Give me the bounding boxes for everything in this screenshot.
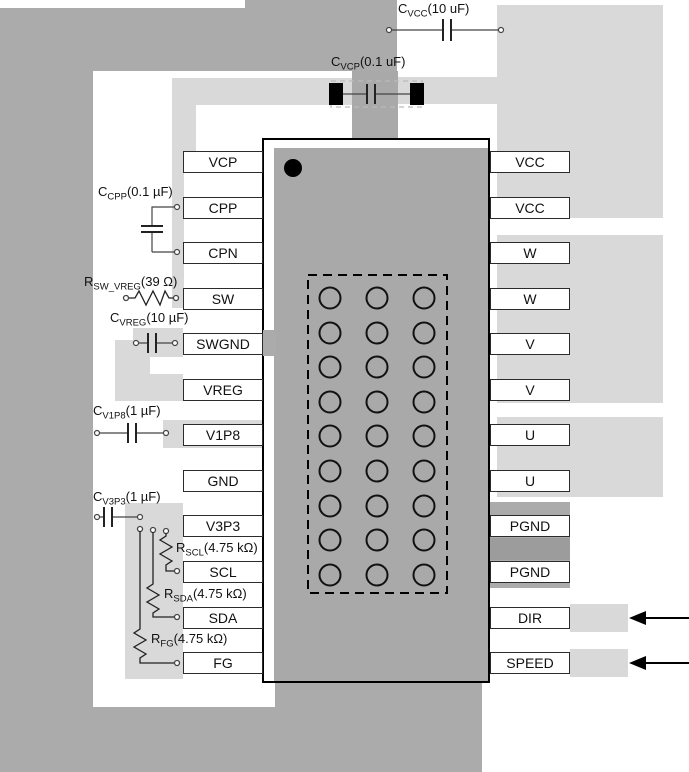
pin-w-right-3: W [490, 288, 570, 310]
pin-speed-right-11: SPEED [490, 652, 570, 674]
thermal-via [367, 357, 388, 378]
label-part: V3P3 [102, 497, 125, 508]
thermal-via [414, 496, 435, 517]
thermal-via [414, 530, 435, 551]
resistor-rswvreg-symbol [124, 291, 179, 305]
label-part: C [331, 54, 340, 69]
label-part: C [110, 310, 119, 325]
label-part: C [398, 1, 407, 16]
thermal-via [320, 392, 341, 413]
pin-vcp-left-0: VCP [183, 151, 263, 173]
thermal-via [320, 461, 341, 482]
speed-input-arrow [629, 656, 689, 670]
pin-u-right-7: U [490, 470, 570, 492]
pin-pgnd-right-8: PGND [490, 515, 570, 537]
thermal-via [367, 496, 388, 517]
pin-dir-right-10: DIR [490, 607, 570, 629]
thermal-via [367, 392, 388, 413]
label-part: R [84, 274, 93, 289]
capacitor-cv1p8-symbol [95, 423, 169, 443]
dir-input-arrow [629, 611, 689, 625]
pin-v-right-5: V [490, 379, 570, 401]
thermal-via [320, 496, 341, 517]
label-cv1p8: CV1P8(1 µF) [93, 403, 161, 422]
capacitor-cv3p3-symbol [95, 507, 143, 527]
label-rsda: RSDA(4.75 kΩ) [164, 586, 247, 605]
label-rswvreg: RSW_VREG(39 Ω) [84, 274, 177, 293]
label-cvreg: CVREG(10 µF) [110, 310, 189, 329]
label-rfg: RFG(4.75 kΩ) [151, 631, 227, 650]
label-part: (4.75 kΩ) [204, 540, 258, 555]
thermal-via [320, 565, 341, 586]
pin1-dot [284, 159, 302, 177]
label-part: (4.75 kΩ) [174, 631, 228, 646]
label-part: VCP [340, 62, 360, 73]
thermal-via [414, 288, 435, 309]
pin-scl-left-9: SCL [183, 561, 263, 583]
label-cvcc: CVCC(10 uF) [398, 1, 469, 20]
capacitor-cvreg-symbol [134, 333, 178, 353]
thermal-via [320, 426, 341, 447]
label-ccpp: CCPP(0.1 µF) [98, 184, 173, 203]
label-part: V1P8 [102, 411, 125, 422]
pin-u-right-6: U [490, 424, 570, 446]
thermal-pad-group [308, 275, 447, 593]
label-part: R [176, 540, 185, 555]
label-part: FG [160, 639, 173, 650]
thermal-via [414, 426, 435, 447]
thermal-via [414, 357, 435, 378]
pin-gnd-left-7: GND [183, 470, 263, 492]
thermal-via [320, 288, 341, 309]
label-part: VCC [407, 9, 427, 20]
capacitor-ccpp-symbol [141, 205, 180, 255]
label-part: (4.75 kΩ) [193, 586, 247, 601]
pin-w-right-2: W [490, 242, 570, 264]
label-part: (0.1 µF) [127, 184, 173, 199]
label-part: SCL [185, 548, 203, 559]
pin-v-right-4: V [490, 333, 570, 355]
label-part: (1 µF) [126, 403, 161, 418]
label-part: CPP [107, 192, 127, 203]
via-left [329, 83, 343, 105]
thermal-via [367, 565, 388, 586]
label-part: R [164, 586, 173, 601]
label-rscl: RSCL(4.75 kΩ) [176, 540, 258, 559]
label-part: (39 Ω) [141, 274, 177, 289]
label-part: SW_VREG [93, 282, 141, 293]
pin-vreg-left-5: VREG [183, 379, 263, 401]
via-right [410, 83, 424, 105]
thermal-via [367, 288, 388, 309]
label-part: C [93, 403, 102, 418]
label-part: (1 µF) [126, 489, 161, 504]
pin-vcc-right-1: VCC [490, 197, 570, 219]
pin-sda-left-10: SDA [183, 607, 263, 629]
pin-v3p3-left-8: V3P3 [183, 515, 263, 537]
thermal-via [367, 461, 388, 482]
thermal-via [414, 323, 435, 344]
thermal-via [320, 323, 341, 344]
label-part: (10 µF) [146, 310, 188, 325]
pin-fg-left-11: FG [183, 652, 263, 674]
pin-vcc-right-0: VCC [490, 151, 570, 173]
label-part: VREG [119, 318, 146, 329]
thermal-via [414, 392, 435, 413]
pcb-layout-diagram: VCPCPPCPNSWSWGNDVREGV1P8GNDV3P3SCLSDAFGV… [0, 0, 689, 772]
pin-pgnd-right-9: PGND [490, 561, 570, 583]
thermal-via [367, 530, 388, 551]
pin-sw-left-3: SW [183, 288, 263, 310]
label-part: SDA [173, 594, 193, 605]
capacitor-cvcc-symbol [387, 19, 504, 41]
pin-cpn-left-2: CPN [183, 242, 263, 264]
schematic-overlay [0, 0, 689, 772]
label-part: (0.1 uF) [360, 54, 406, 69]
pin-swgnd-left-4: SWGND [183, 333, 263, 355]
thermal-via [320, 530, 341, 551]
thermal-via-array [320, 288, 435, 586]
label-part: C [93, 489, 102, 504]
label-part: R [151, 631, 160, 646]
label-part: C [98, 184, 107, 199]
thermal-via [414, 565, 435, 586]
capacitor-cvcp-symbol [329, 81, 424, 107]
thermal-via [367, 426, 388, 447]
label-cvcp: CVCP(0.1 uF) [331, 54, 405, 73]
label-part: (10 uF) [427, 1, 469, 16]
pin-cpp-left-1: CPP [183, 197, 263, 219]
label-cv3p3: CV3P3(1 µF) [93, 489, 161, 508]
pin-v1p8-left-6: V1P8 [183, 424, 263, 446]
thermal-via [320, 357, 341, 378]
thermal-via [367, 323, 388, 344]
thermal-via [414, 461, 435, 482]
